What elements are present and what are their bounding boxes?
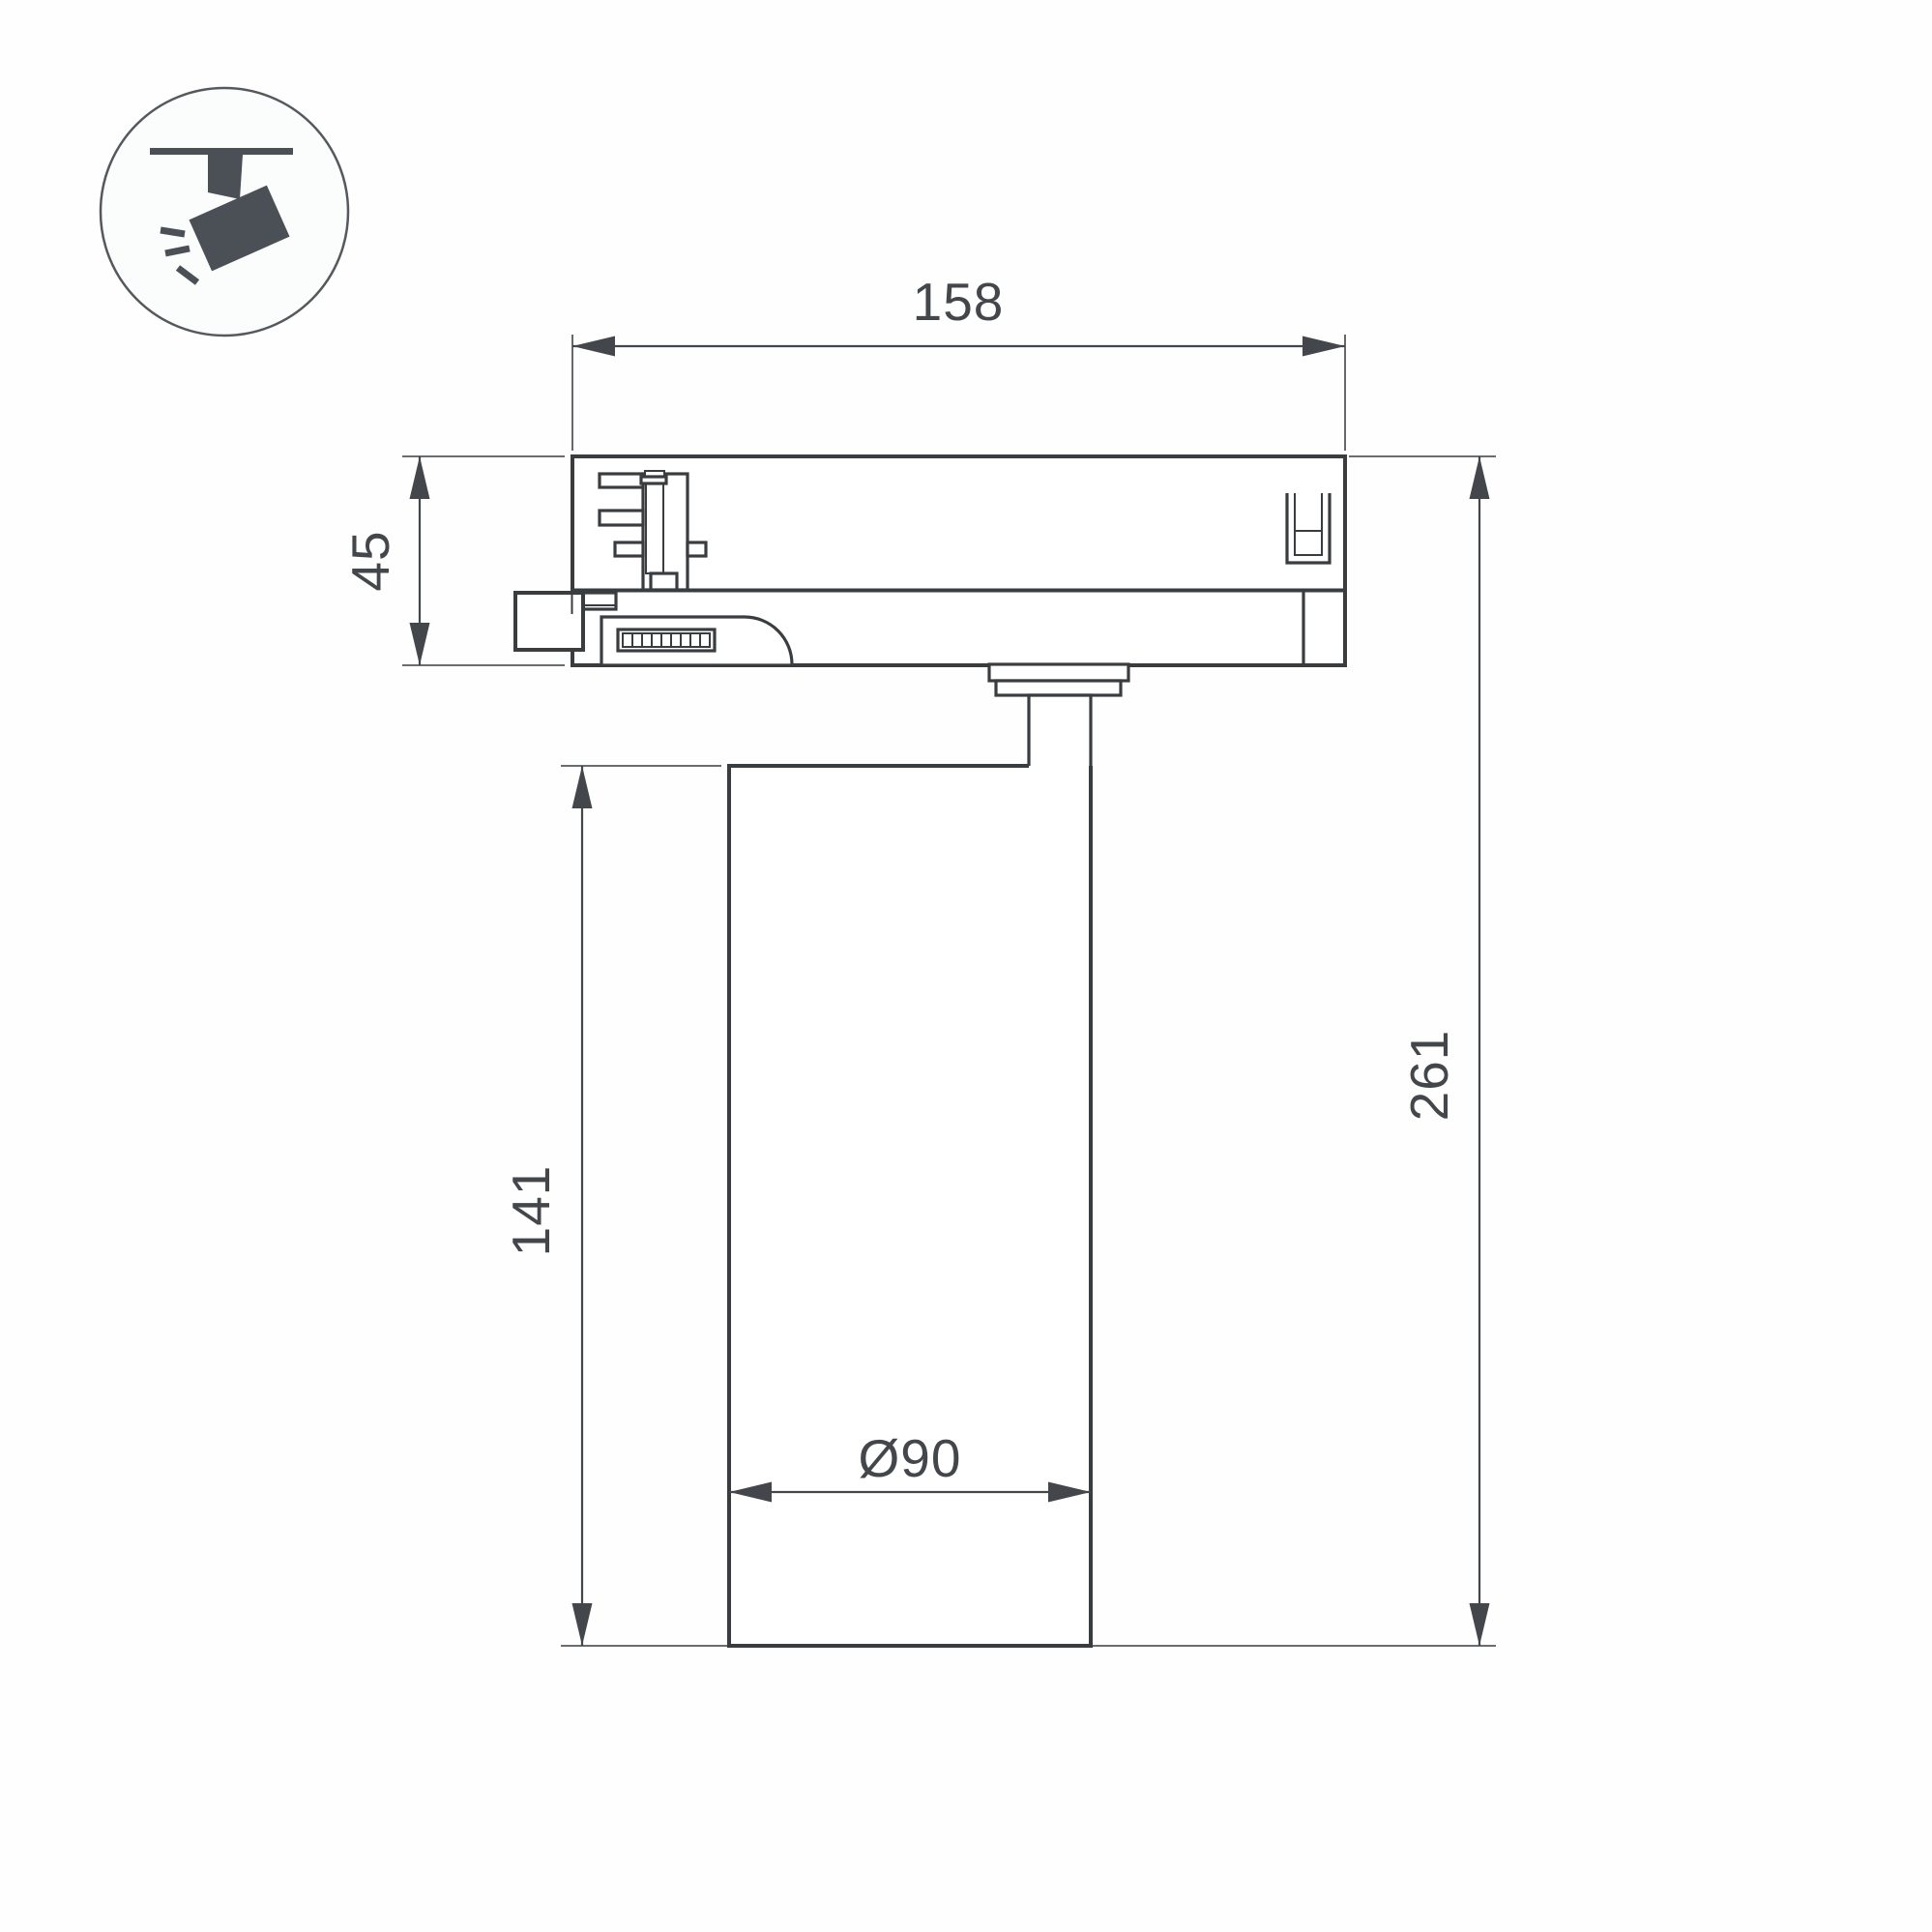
product-type-badge bbox=[101, 88, 348, 336]
dim-label-body-diameter: Ø90 bbox=[859, 1428, 962, 1488]
drawing-page: 158 45 141 261 bbox=[0, 0, 1932, 1932]
track-adapter bbox=[515, 456, 1345, 665]
light-ray-icon bbox=[161, 230, 185, 234]
contact-cap bbox=[641, 477, 666, 483]
contact-prong bbox=[600, 474, 643, 487]
lamp-body bbox=[729, 766, 1091, 1646]
flange-upper bbox=[989, 664, 1128, 681]
ceiling-line bbox=[150, 148, 293, 155]
dim-label-adapter-height: 45 bbox=[340, 530, 400, 591]
arrowhead-left bbox=[572, 337, 615, 357]
arrowhead-top bbox=[572, 766, 593, 808]
arrowhead-top bbox=[1470, 456, 1490, 499]
lamp-body-fill bbox=[729, 766, 1091, 1646]
dim-label-adapter-width: 158 bbox=[913, 272, 1005, 332]
technical-drawing: 158 45 141 261 bbox=[0, 0, 1932, 1932]
dim-body-height: 141 bbox=[501, 766, 721, 1646]
dim-label-total-height: 261 bbox=[1399, 1030, 1459, 1122]
contact-foot bbox=[651, 573, 677, 590]
dim-adapter-width: 158 bbox=[572, 272, 1345, 451]
arrowhead-top bbox=[410, 456, 430, 499]
contact-tab bbox=[688, 542, 706, 556]
gear-housing bbox=[601, 617, 792, 665]
arrowhead-right bbox=[1303, 337, 1345, 357]
contact-prong bbox=[615, 542, 643, 556]
arrowhead-bottom bbox=[572, 1603, 593, 1646]
contact-prong bbox=[600, 511, 643, 525]
arrowhead-bottom bbox=[1470, 1603, 1490, 1646]
mount-stem bbox=[208, 155, 243, 199]
arrowhead-bottom bbox=[410, 623, 430, 665]
swivel-stem-fill bbox=[1029, 695, 1091, 766]
light-ray-icon bbox=[165, 249, 190, 253]
dim-label-body-height: 141 bbox=[501, 1165, 561, 1257]
swivel-joint bbox=[989, 664, 1128, 766]
dim-total-height: 261 bbox=[1349, 456, 1496, 1646]
flange-lower bbox=[996, 681, 1121, 695]
latch-tongue bbox=[583, 593, 616, 609]
